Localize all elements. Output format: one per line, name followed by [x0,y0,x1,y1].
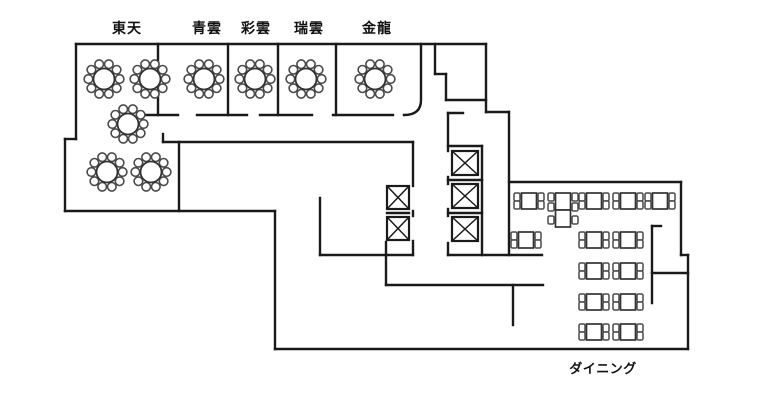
chair [161,75,170,84]
chair [112,84,121,93]
table-top [365,69,386,90]
table-top [621,232,636,248]
chair [603,324,609,332]
chair [669,201,675,209]
chair [637,263,643,271]
chair [152,153,161,162]
room-label-kinryu: 金龍 [361,20,392,36]
dining-table [613,263,643,279]
chair [548,203,554,211]
chair [383,84,392,93]
round-table [130,60,170,98]
chair [307,90,316,99]
chair [215,75,224,84]
chair [613,193,619,201]
chair [535,232,541,240]
table-top [556,210,571,227]
chair [205,90,214,99]
dining-table [613,324,643,340]
dining-table [613,294,643,310]
chair [579,240,585,248]
table-top [621,294,636,310]
dining-table [511,232,541,248]
chair [572,203,578,211]
chair [108,153,117,162]
chair [195,60,204,69]
chair [90,159,99,168]
chair [212,84,221,93]
chair [263,84,272,93]
chair [637,201,643,209]
room-label-dining: ダイニング [569,361,637,376]
chair [119,135,128,144]
chair [133,66,142,75]
room-label-zuiun: 瑞雲 [294,20,324,36]
table-top [97,162,118,183]
chair [115,159,124,168]
chair [129,105,138,114]
dining-table-pair [548,193,578,227]
dining-table [579,232,609,248]
chair [579,271,585,279]
chair [134,177,143,186]
table-top [556,193,571,210]
table-top [118,114,139,135]
chair [383,66,392,75]
chair [579,193,585,201]
chair [131,168,140,177]
round-table [87,153,127,191]
chair [108,183,117,192]
chair [98,153,107,162]
chair [118,168,127,177]
chair [538,201,544,209]
chair [603,201,609,209]
chair [307,60,316,69]
chair [246,60,255,69]
table-top [587,193,602,209]
chair [603,302,609,310]
chair [289,66,298,75]
table-top [587,324,602,340]
chair [637,332,643,340]
chair [538,193,544,201]
chair [297,90,306,99]
dining-table [613,193,643,209]
chair [130,75,139,84]
chair [314,66,323,75]
chair [613,332,619,340]
dining-table [514,193,544,209]
chair [286,75,295,84]
chair [152,183,161,192]
round-table [84,60,124,98]
round-table [286,60,326,98]
chair [238,84,247,93]
table-top [140,69,161,90]
chair [263,66,272,75]
chair [95,90,104,99]
chair [645,201,651,209]
chair [613,294,619,302]
chair [139,120,148,129]
chair [603,332,609,340]
chair [297,60,306,69]
wall-segment-curved [404,44,421,115]
chair [289,84,298,93]
chair [205,60,214,69]
table-top [522,193,537,209]
chair [366,90,375,99]
floor-plan-canvas: 東天青雲彩雲瑞雲金龍ダイニング [0,0,760,400]
chair [317,75,326,84]
chair [129,135,138,144]
chair [572,216,578,224]
chair [358,84,367,93]
chair [84,75,93,84]
chair [134,159,143,168]
round-table [108,105,148,143]
chair [603,232,609,240]
chair [158,66,167,75]
restaurant-floor-plan: 東天青雲彩雲瑞雲金龍ダイニング [0,0,760,400]
round-table [235,60,275,98]
chair [151,90,160,99]
chair [603,271,609,279]
table-top [621,193,636,209]
chair [105,60,114,69]
chair [613,232,619,240]
chair [579,263,585,271]
chair [579,232,585,240]
chair [376,60,385,69]
chair [119,105,128,114]
chair [603,263,609,271]
chair [111,129,120,138]
chair [115,177,124,186]
room-label-seiun: 青雲 [192,20,222,36]
chair [90,177,99,186]
chair [613,201,619,209]
dining-table [579,263,609,279]
elevator-icon [387,186,409,209]
chair [141,60,150,69]
round-table [131,153,171,191]
table-top [621,324,636,340]
chair [95,60,104,69]
table-top [245,69,266,90]
chair [87,66,96,75]
chair [151,60,160,69]
chair [376,90,385,99]
chair [511,240,517,248]
chair [572,193,578,201]
table-top [621,263,636,279]
chair [637,232,643,240]
table-top [296,69,317,90]
dining-table [613,232,643,248]
chair [158,84,167,93]
chair [579,332,585,340]
chair [98,183,107,192]
chair [235,75,244,84]
chair [184,75,193,84]
chair [613,302,619,310]
chair [108,120,117,129]
chair [579,201,585,209]
table-top [94,69,115,90]
chair [613,263,619,271]
chair [87,84,96,93]
chair [579,302,585,310]
chair [87,168,96,177]
chair [159,177,168,186]
chair [637,294,643,302]
chair [136,129,145,138]
chair [603,240,609,248]
chair [637,324,643,332]
round-table [355,60,395,98]
dining-table [579,294,609,310]
chair [142,153,151,162]
chair [187,84,196,93]
table-top [587,232,602,248]
table-top [587,263,602,279]
chair [238,66,247,75]
chair [355,75,364,84]
table-top [194,69,215,90]
chair [514,193,520,201]
chair [386,75,395,84]
chair [255,90,264,99]
chair [212,66,221,75]
chair [511,232,517,240]
round-table [184,60,224,98]
elevator-icon [387,217,409,240]
chair [111,111,120,120]
chair [162,168,171,177]
chair [535,240,541,248]
dining-table [645,193,675,209]
chair [115,75,124,84]
chair [159,159,168,168]
chair [187,66,196,75]
chair [112,66,121,75]
table-top [587,294,602,310]
chair [637,271,643,279]
chair [637,193,643,201]
chair [136,111,145,120]
chair [366,60,375,69]
chair [637,240,643,248]
table-top [519,232,534,248]
chair [579,294,585,302]
chair [613,240,619,248]
chair [255,60,264,69]
chair [514,201,520,209]
chair [645,193,651,201]
chair [358,66,367,75]
chair [548,216,554,224]
chair [637,302,643,310]
room-label-saiun: 彩雲 [240,20,271,36]
dining-table [579,324,609,340]
chair [579,324,585,332]
chair [603,193,609,201]
chair [669,193,675,201]
chair [603,294,609,302]
table-top [653,193,668,209]
chair [266,75,275,84]
chair [246,90,255,99]
room-label-toten: 東天 [112,20,142,36]
elevator-icon [452,217,478,241]
chair [141,90,150,99]
dining-table [579,193,609,209]
chair [142,183,151,192]
chair [613,324,619,332]
chair [613,271,619,279]
elevator-icon [452,184,478,208]
chair [314,84,323,93]
chair [133,84,142,93]
chair [105,90,114,99]
table-top [141,162,162,183]
chair [548,193,554,201]
elevator-icon [452,151,478,175]
chair [195,90,204,99]
